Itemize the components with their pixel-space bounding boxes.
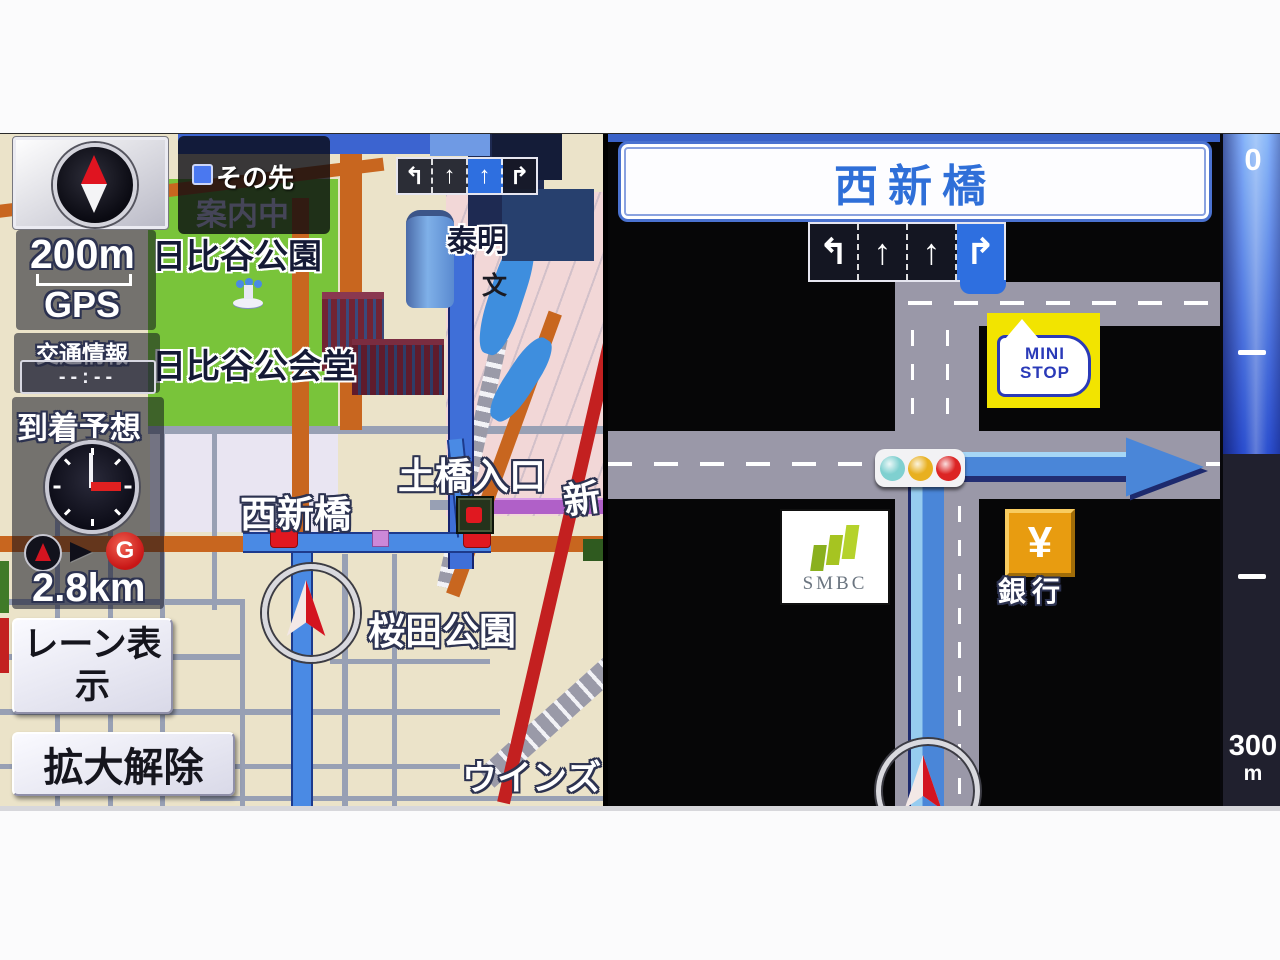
lane-arrow: ↰ <box>810 224 859 280</box>
ramp-entrance-icon <box>456 496 494 534</box>
lane-arrow-active: ↱ <box>957 224 1004 280</box>
lane-arrow: ↰ <box>398 159 433 193</box>
ministop-text-line2: STOP <box>1020 363 1070 382</box>
map-label-hall: 日比谷公会堂 <box>152 339 356 388</box>
map-label-park: 日比谷公園 <box>152 229 322 278</box>
smbc-label: SMBC <box>782 573 888 595</box>
fountain-icon <box>228 278 268 308</box>
intersection-lane-bar: ↰ ↑ ↑ ↱ <box>808 222 1006 282</box>
arrival-clock <box>45 440 139 534</box>
map-label-taimei: 泰明 <box>447 216 507 260</box>
goal-marker: G <box>106 532 144 570</box>
zoom-cancel-button-label: 拡大解除 <box>44 735 204 793</box>
map-label-sakurada: 桜田公園 <box>368 601 516 655</box>
next-lane-bar: ↰ ↑ ↑ ↱ <box>396 157 538 195</box>
distance-to-goal: 2.8km <box>32 566 145 611</box>
to-goal-arrow-icon <box>70 542 92 562</box>
map-scale-button[interactable]: 200m <box>30 231 135 278</box>
ministop-text-line1: MINI <box>1025 344 1065 363</box>
bank-yen-symbol: ¥ <box>1028 521 1052 565</box>
next-guidance-icon <box>192 164 213 185</box>
lane-arrow: ↱ <box>503 159 536 193</box>
distance-remaining-fill <box>1223 134 1280 454</box>
vehicle-position-arrow <box>901 755 945 807</box>
map-panel[interactable]: 日比谷公園 日比谷公会堂 泰明 文 西新橋 土橋入口 新 桜田公園 ウインズ 2… <box>0 134 603 807</box>
scale-bottom-value: 300 <box>1223 730 1280 763</box>
traffic-light-green <box>880 456 905 481</box>
road-vertical-dash-1 <box>911 330 914 430</box>
road-vertical-dash-2 <box>946 330 949 430</box>
intersection-title: 西新橋 <box>834 150 996 214</box>
building-navy-2 <box>502 189 594 261</box>
green-strip-left-edge <box>0 561 9 613</box>
scale-top-label: 0 <box>1223 142 1280 178</box>
lane-arrow-active: ↑ <box>468 159 503 193</box>
compass-needle-north <box>81 155 107 184</box>
scale-bottom-unit: m <box>1223 762 1280 786</box>
map-label-dobashi: 土橋入口 <box>398 446 546 500</box>
lane-display-button-label: レーン表示 <box>23 624 163 708</box>
road-red-left-edge <box>0 618 9 673</box>
intersection-zoom-panel[interactable]: MINI STOP SMBC ¥ 銀行 西新橋 ↰ ↑ ↑ ↱ <box>608 134 1280 807</box>
lane-arrow: ↑ <box>433 159 468 193</box>
lane-bar-tail <box>960 280 1006 294</box>
gps-status-label: GPS <box>44 284 120 326</box>
compass-dial <box>53 143 137 227</box>
vehicle-position-arrow <box>283 580 329 636</box>
vics-marker <box>372 530 389 547</box>
map-label-nishishinbashi: 西新橋 <box>240 484 351 538</box>
school-icon: 文 <box>482 266 507 302</box>
lane-arrow: ↑ <box>859 224 908 280</box>
scale-tick-100 <box>1238 350 1266 355</box>
scale-tick-200 <box>1238 574 1266 579</box>
map-label-wins: ウインズ <box>462 750 601 801</box>
guidance-status-label: 案内中 <box>196 189 289 234</box>
traffic-time-value: --:-- <box>59 366 117 389</box>
intersection-title-bar: 西新橋 <box>618 141 1212 222</box>
lane-arrow: ↑ <box>908 224 957 280</box>
traffic-time-display: --:-- <box>20 360 156 394</box>
traffic-light-yellow <box>908 456 933 481</box>
goal-marker-letter: G <box>116 537 135 565</box>
distance-scale-bar: 0 300 m <box>1220 134 1280 807</box>
zoom-cancel-button[interactable]: 拡大解除 <box>12 732 235 796</box>
next-guidance-overlay: その先 案内中 <box>178 136 330 234</box>
map-label-shin: 新 <box>559 467 603 526</box>
lane-display-button[interactable]: レーン表示 <box>12 618 173 714</box>
map-banner-lightblue <box>430 134 490 156</box>
traffic-light-red <box>936 456 961 481</box>
ministop-icon: MINI STOP <box>987 313 1100 408</box>
nav-screen: 日比谷公園 日比谷公会堂 泰明 文 西新橋 土橋入口 新 桜田公園 ウインズ 2… <box>0 133 1280 807</box>
bank-label: 銀行 <box>998 570 1066 610</box>
compass-button[interactable] <box>12 136 169 230</box>
bank-icon: ¥ <box>1005 509 1075 577</box>
green-block-right <box>583 539 603 561</box>
clock-hour-hand <box>91 482 121 491</box>
compass-needle-south <box>81 184 107 213</box>
smbc-icon: SMBC <box>782 511 888 603</box>
traffic-light-icon <box>875 449 965 487</box>
building-red-2 <box>352 339 444 395</box>
car-navigation-screenshot: 日比谷公園 日比谷公会堂 泰明 文 西新橋 土橋入口 新 桜田公園 ウインズ 2… <box>0 0 1280 960</box>
screen-bottom-edge <box>0 806 1280 811</box>
